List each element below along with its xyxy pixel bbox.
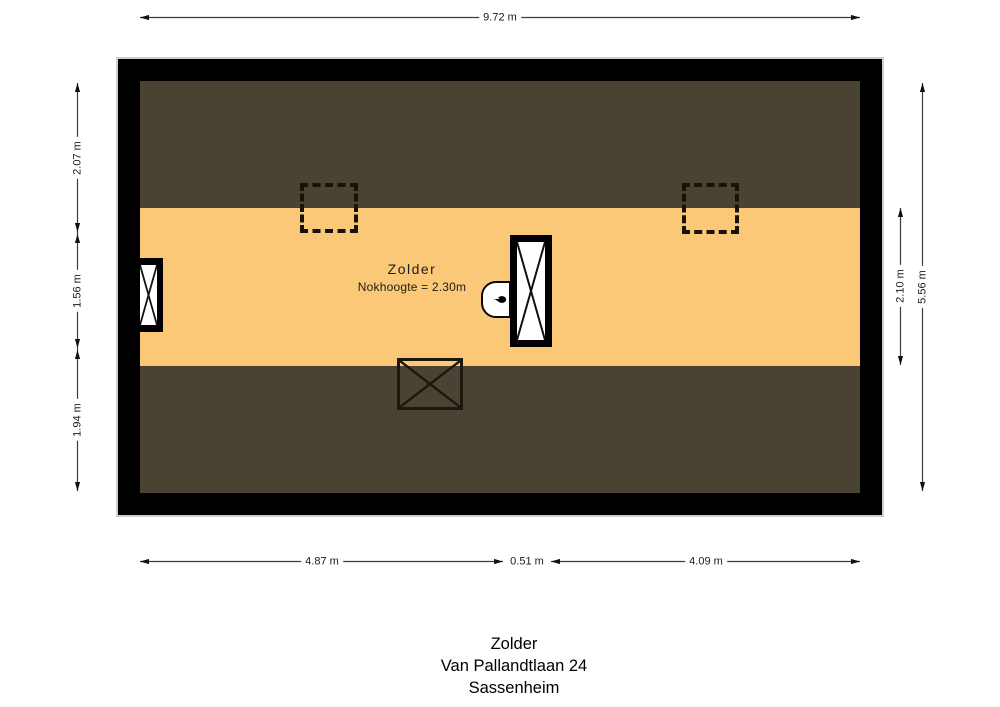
caption: Zolder Van Pallandtlaan 24 Sassenheim — [441, 633, 587, 699]
stair-opening — [397, 358, 463, 410]
flame-icon — [492, 291, 509, 308]
room-label: Zolder Nokhoogte = 2.30m — [358, 261, 466, 294]
dim-label-bottom-middle: 0.51 m — [506, 555, 548, 568]
dim-label-total-height: 5.56 m — [916, 266, 929, 308]
dim-label-floor-band-height: 2.10 m — [894, 265, 907, 307]
boiler — [481, 281, 511, 318]
room-name: Zolder — [358, 261, 466, 277]
stair-cross-icon — [400, 361, 460, 407]
caption-city: Sassenheim — [441, 677, 587, 699]
caption-street: Van Pallandtlaan 24 — [441, 655, 587, 677]
shaft-cross-icon — [517, 242, 545, 340]
window-left — [138, 263, 159, 327]
ridge-height-note: Nokhoogte = 2.30m — [358, 280, 466, 294]
dim-label-total-width: 9.72 m — [479, 11, 521, 24]
dim-label-left-bottom: 1.94 m — [71, 399, 84, 441]
skylight-right — [682, 183, 739, 234]
dim-label-bottom-left: 4.87 m — [301, 555, 343, 568]
floorplan-canvas: 9.72 m 2.07 m 1.56 m 1.94 m 2.10 m 5.56 … — [0, 0, 1000, 707]
shaft — [517, 242, 545, 340]
window-cross-icon — [140, 265, 157, 325]
dim-label-left-middle: 1.56 m — [71, 270, 84, 312]
dim-label-left-top: 2.07 m — [71, 137, 84, 179]
caption-room: Zolder — [441, 633, 587, 655]
skylight-left — [300, 183, 358, 233]
dim-label-bottom-right: 4.09 m — [685, 555, 727, 568]
